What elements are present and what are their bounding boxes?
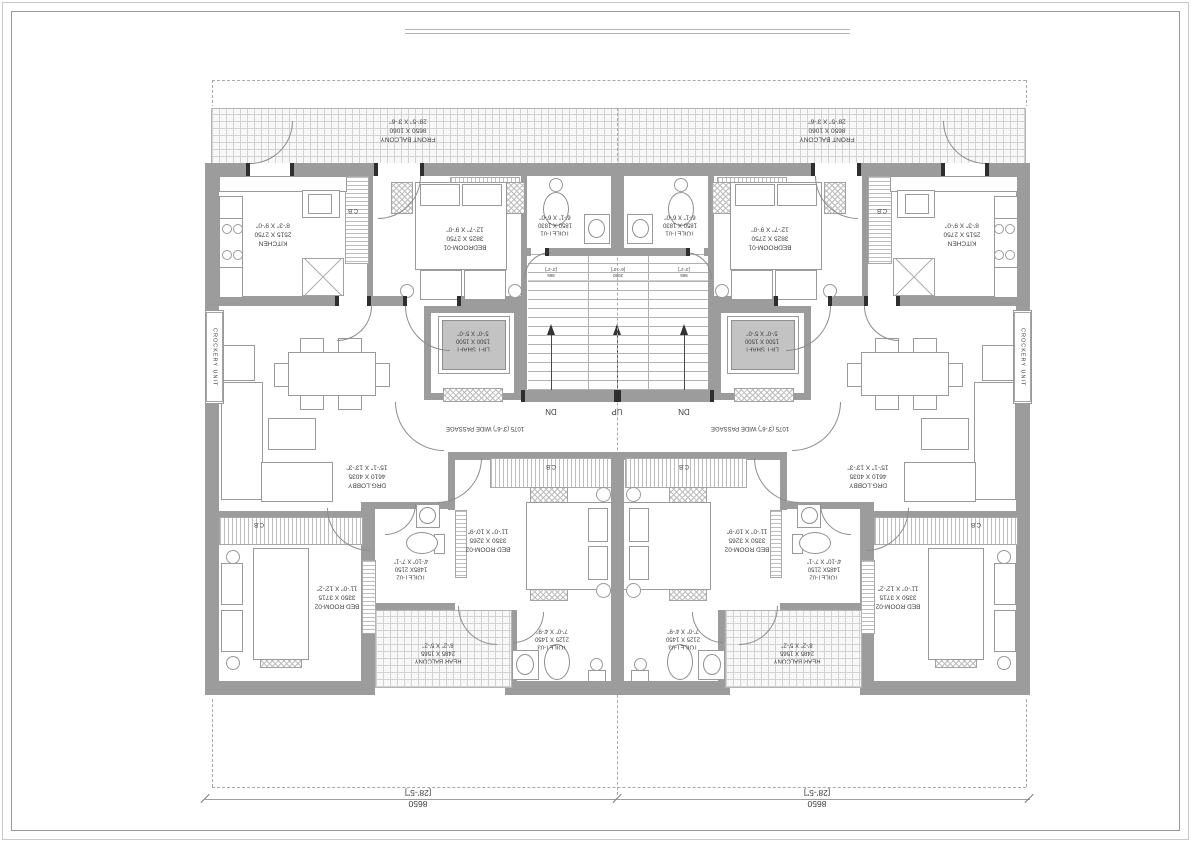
room-label-ft: 7'-0" X 4'-9" <box>520 626 584 634</box>
room-label-mm: 8650 X 1060 <box>352 125 464 134</box>
room-label-ft: 5'-0" X 5'-0" <box>443 328 503 336</box>
room-label-rear_balcony: REAR BALCONY2485 X 15658'-2" X 5'-2" <box>398 640 478 664</box>
door-jamb <box>367 296 371 306</box>
room-label-ft: 8'-3" X 9'-0" <box>238 220 308 229</box>
furniture <box>268 418 316 450</box>
wall <box>521 390 618 402</box>
room-label-name: TOILET-03 <box>651 642 715 650</box>
fixture-circle <box>226 550 240 564</box>
fixture-circle <box>222 224 232 234</box>
room-label-name: TOILET-02 <box>794 572 854 580</box>
room-label-ft: 4'-10" X 7'-1" <box>794 556 854 564</box>
room-label-name: DRG.LOBBY <box>831 480 905 489</box>
room-label-mm: 3350 X 3715 <box>861 592 935 601</box>
room-label-mm: 1500 X 1500 <box>443 336 503 344</box>
door-jamb <box>290 163 294 176</box>
room-label-kitchen: KITCHEN2515 X 27508'-3" X 9'-0" <box>927 220 997 246</box>
fixture-circle <box>674 178 688 192</box>
furniture <box>731 270 773 300</box>
stair-arrow <box>551 335 552 391</box>
stair-landing-dim-mm: 2080 <box>604 272 632 278</box>
wall <box>1016 163 1030 695</box>
sanitary-fixture <box>801 507 818 524</box>
room-label-front_balcony: FRONT BALCONY8650 X 106028'-5" X 3'-6" <box>771 116 883 142</box>
unit-width-dimension-right: 8650 [28'-5"] <box>790 786 844 809</box>
furniture <box>588 670 606 682</box>
furniture <box>221 563 243 605</box>
fixture-circle <box>222 250 232 260</box>
hatch-area <box>345 176 369 264</box>
room-label-name: DRG.LOBBY <box>330 480 404 489</box>
stair-arrow <box>684 335 685 391</box>
room-label-ft: 28'-5" X 3'-6" <box>352 116 464 125</box>
room-label-mm: 3825 X 2750 <box>428 233 502 242</box>
room-label-mm: 2515 X 2750 <box>927 229 997 238</box>
room-label-name: BED ROOM-02 <box>709 544 785 553</box>
wall <box>860 681 1030 695</box>
door-jamb <box>941 163 945 176</box>
room-label-toilet_02: TOILET-021485X 21504'-10" X 7'-1" <box>381 556 441 580</box>
room-label-ft: 8'-2" X 5'-2" <box>757 640 837 648</box>
room-label-mm: 2125 X 1450 <box>651 634 715 642</box>
room-label-bed_room_02_b: BED ROOM-023350 X 326511'-0" X 10'-9" <box>450 526 526 552</box>
room-label-mm: 1850 X 1830 <box>652 220 708 228</box>
room-label-ft: 15'-1" X 13'-3" <box>330 462 404 471</box>
crockery-unit-label: CROCKERY UNIT <box>206 312 223 402</box>
room-label-toilet_01: TOILET-011850 X 18306'-1" X 6'-0" <box>527 212 583 236</box>
room-label-name: REAR BALCONY <box>757 656 837 664</box>
stair-dn-label: DN <box>673 405 695 416</box>
room-label-name: TOILET-03 <box>520 642 584 650</box>
room-label-name: TOILET-01 <box>527 228 583 236</box>
door-opening <box>250 163 290 176</box>
room-label-ft: 15'-1" X 13'-3" <box>831 462 905 471</box>
room-label-mm: 3350 X 3715 <box>300 592 374 601</box>
room-label-name: KITCHEN <box>927 238 997 247</box>
stair-landing-dim: 2080 [6'-10"] <box>604 266 632 278</box>
passage-text: 1075 (3'-6") WIDE PASSAGE <box>702 424 798 432</box>
cupboard-label: C.B <box>671 462 697 470</box>
room-label-mm: 1485X 2150 <box>381 564 441 572</box>
stair-arrow-head <box>680 324 688 335</box>
floor-plan-sheet: 965 [3'-2"] 2080 [6'-10"] 965 [3'-2"] DN… <box>0 0 1191 842</box>
wall <box>505 681 618 695</box>
hatch-area <box>443 388 503 402</box>
furniture <box>875 395 899 410</box>
dim-ft: [28'-5"] <box>790 786 844 797</box>
furniture <box>420 270 462 300</box>
room-label-drg_lobby: DRG.LOBBY4610 X 403515'-1" X 13'-3" <box>330 462 404 488</box>
room-label-mm: 2515 X 2750 <box>238 229 308 238</box>
fixture-circle <box>994 250 1004 260</box>
room-label-mm: 1485X 2150 <box>794 564 854 572</box>
room-label-mm: 3350 X 3265 <box>709 535 785 544</box>
furniture <box>588 508 608 542</box>
room-label-name: BEDROOM-01 <box>733 242 807 251</box>
room-label-mm: 1500 X 1500 <box>732 336 792 344</box>
room-label-mm: 8650 X 1060 <box>771 125 883 134</box>
cupboard-label: C.B <box>340 206 366 214</box>
wall <box>205 681 375 695</box>
room-label-name: FRONT BALCONY <box>352 134 464 143</box>
dim-ft: [28'-5"] <box>391 786 445 797</box>
furniture <box>221 382 263 500</box>
room-label-bed_room_02_a: BED ROOM-023350 X 371511'-0" X 12'-2" <box>861 583 935 609</box>
crockery-unit-label: CROCKERY UNIT <box>1014 312 1031 402</box>
furniture <box>338 395 362 410</box>
furniture <box>982 345 1016 381</box>
room-label-name: TOILET-01 <box>652 228 708 236</box>
room-label-ft: 6'-1" X 6'-0" <box>527 212 583 220</box>
furniture <box>904 462 976 502</box>
dim-mm: 8650 <box>790 797 844 808</box>
room-label-name: LIFT SHAFT <box>443 344 503 352</box>
cb-text: C.B <box>963 520 989 528</box>
furniture <box>861 352 949 396</box>
room-label-bed_room_02_a: BED ROOM-023350 X 371511'-0" X 12'-2" <box>300 583 374 609</box>
wall <box>549 248 618 256</box>
room-label-ft: 8'-3" X 9'-0" <box>927 220 997 229</box>
door-jamb <box>811 163 815 176</box>
door-jamb <box>420 163 424 176</box>
furniture <box>629 508 649 542</box>
unit-width-dimension-left: 8650 [28'-5"] <box>391 786 445 809</box>
fixture-circle <box>997 656 1011 670</box>
fixture-circle <box>596 487 611 502</box>
door-jamb <box>864 296 868 306</box>
furniture <box>921 418 969 450</box>
wall <box>780 603 867 610</box>
stair-flight-divider <box>648 254 649 392</box>
room-label-mm: 2485 X 1565 <box>757 648 837 656</box>
fixture-circle <box>997 550 1011 564</box>
dim-mm: 8650 <box>391 797 445 808</box>
stair-dim-line <box>528 280 708 281</box>
wall <box>617 248 686 256</box>
furniture <box>913 338 937 353</box>
door-jamb <box>457 296 461 306</box>
wall <box>611 163 624 254</box>
furniture <box>994 563 1016 605</box>
room-label-bedroom_01: BEDROOM-013825 X 275012'-7" X 9'-0" <box>733 224 807 250</box>
stair-dn-label: DN <box>540 405 562 416</box>
room-label-drg_lobby: DRG.LOBBY4610 X 403515'-1" X 13'-3" <box>831 462 905 488</box>
refrigerator-space <box>302 258 344 296</box>
sanitary-fixture <box>588 219 605 238</box>
door-jamb <box>617 390 621 402</box>
furniture <box>261 462 333 502</box>
stair-landing-dim-ft: [6'-10"] <box>604 266 632 272</box>
room-label-toilet_03: TOILET-032125 X 14507'-0" X 4'-9" <box>651 626 715 650</box>
room-label-ft: 11'-0" X 12'-2" <box>300 583 374 592</box>
stair-flight-divider <box>588 254 589 392</box>
sanitary-fixture <box>516 654 534 675</box>
room-label-ft: 12'-7" X 9'-0" <box>733 224 807 233</box>
fixture-circle <box>634 658 647 671</box>
wall <box>832 296 864 306</box>
cupboard-label: C.B <box>869 206 895 214</box>
door-jamb <box>857 163 861 176</box>
room-label-mm: 1850 X 1830 <box>527 220 583 228</box>
door-jamb <box>403 296 407 306</box>
door-opening <box>378 163 420 176</box>
door-jamb <box>246 163 250 176</box>
sanitary-fixture <box>419 507 436 524</box>
wall <box>205 163 219 695</box>
sanitary-fixture <box>632 219 649 238</box>
furniture <box>462 184 502 206</box>
room-label-name: LIFT SHAFT <box>732 344 792 352</box>
furniture <box>375 363 390 387</box>
door-jamb <box>828 296 832 306</box>
furniture <box>274 363 289 387</box>
furniture <box>631 670 649 682</box>
room-label-ft: 7'-0" X 4'-9" <box>651 626 715 634</box>
dn-text: DN <box>673 405 695 416</box>
fixture-circle <box>626 583 641 598</box>
furniture <box>464 270 506 300</box>
room-label-name: FRONT BALCONY <box>771 134 883 143</box>
wall <box>617 390 714 402</box>
room-label-mm: 3350 X 3265 <box>450 535 526 544</box>
furniture <box>994 610 1016 652</box>
wall <box>514 306 521 400</box>
room-label-ft: 4'-10" X 7'-1" <box>381 556 441 564</box>
room-label-name: BED ROOM-02 <box>450 544 526 553</box>
door-opening <box>815 163 857 176</box>
fixture-circle <box>1005 224 1015 234</box>
room-label-name: BEDROOM-01 <box>428 242 502 251</box>
room-label-name: TOILET-02 <box>381 572 441 580</box>
room-label-name: KITCHEN <box>238 238 308 247</box>
furniture <box>928 548 984 660</box>
passage-text: 1075 (3'-6") WIDE PASSAGE <box>437 424 533 432</box>
hatch-area <box>868 176 892 264</box>
fixture-circle <box>233 250 243 260</box>
wall <box>368 603 455 610</box>
room-label-mm: 4610 X 4035 <box>831 471 905 480</box>
fixture-circle <box>549 178 563 192</box>
furniture <box>221 345 255 381</box>
cupboard-label: C.B <box>246 520 272 528</box>
fixture-circle <box>626 487 641 502</box>
fixture-circle <box>1005 250 1015 260</box>
bottom-dimension-line <box>205 799 1030 800</box>
room-label-name: BED ROOM-02 <box>861 601 935 610</box>
door-jamb <box>686 248 690 256</box>
room-label-lift_shaft: LIFT SHAFT1500 X 15005'-0" X 5'-0" <box>732 328 792 352</box>
fixture-circle <box>508 284 522 298</box>
fixture-circle <box>226 656 240 670</box>
furniture <box>974 382 1016 500</box>
room-label-mm: 3825 X 2750 <box>733 233 807 242</box>
room-label-ft: 11'-0" X 10'-9" <box>450 526 526 535</box>
fixture-circle <box>590 658 603 671</box>
cb-text: C.B <box>671 462 697 470</box>
hatch-area <box>734 388 794 402</box>
wall <box>371 296 403 306</box>
door-jamb <box>335 296 339 306</box>
room-label-front_balcony: FRONT BALCONY8650 X 106028'-5" X 3'-6" <box>352 116 464 142</box>
room-label-ft: 5'-0" X 5'-0" <box>732 328 792 336</box>
room-label-name: REAR BALCONY <box>398 656 478 664</box>
room-label-ft: 28'-5" X 3'-6" <box>771 116 883 125</box>
door-jamb <box>545 248 549 256</box>
sanitary-fixture <box>703 654 721 675</box>
fixture-circle <box>596 583 611 598</box>
wall <box>617 681 730 695</box>
party-centre-line-lower <box>617 695 618 795</box>
room-label-bedroom_01: BEDROOM-013825 X 275012'-7" X 9'-0" <box>428 224 502 250</box>
furniture <box>588 546 608 580</box>
room-label-mm: 2125 X 1450 <box>520 634 584 642</box>
door-jamb <box>774 296 778 306</box>
door-jamb <box>985 163 989 176</box>
cb-text: C.B <box>340 206 366 214</box>
wall <box>714 306 721 400</box>
room-label-kitchen: KITCHEN2515 X 27508'-3" X 9'-0" <box>238 220 308 246</box>
furniture <box>308 194 332 214</box>
refrigerator-space <box>893 258 935 296</box>
furniture <box>288 352 376 396</box>
furniture <box>300 338 324 353</box>
room-label-toilet_03: TOILET-032125 X 14507'-0" X 4'-9" <box>520 626 584 650</box>
furniture <box>948 363 963 387</box>
room-label-toilet_02: TOILET-021485X 21504'-10" X 7'-1" <box>794 556 854 580</box>
furniture <box>300 395 324 410</box>
room-label-bed_room_02_b: BED ROOM-023350 X 326511'-0" X 10'-9" <box>709 526 785 552</box>
cupboard-label: C.B <box>538 462 564 470</box>
room-label-ft: 6'-1" X 6'-0" <box>652 212 708 220</box>
furniture <box>775 270 817 300</box>
furniture <box>221 610 243 652</box>
room-label-ft: 11'-0" X 10'-9" <box>709 526 785 535</box>
furniture <box>913 395 937 410</box>
door-jamb <box>710 390 714 402</box>
room-label-ft: 12'-7" X 9'-0" <box>428 224 502 233</box>
cb-text: C.B <box>869 206 895 214</box>
cb-text: C.B <box>246 520 272 528</box>
plan-area: 965 [3'-2"] 2080 [6'-10"] 965 [3'-2"] DN… <box>0 0 1191 842</box>
room-label-lift_shaft: LIFT SHAFT1500 X 15005'-0" X 5'-0" <box>443 328 503 352</box>
dn-text: DN <box>540 405 562 416</box>
furniture <box>847 363 862 387</box>
room-label-toilet_01: TOILET-011850 X 18306'-1" X 6'-0" <box>652 212 708 236</box>
sanitary-fixture <box>799 532 831 554</box>
furniture <box>777 184 817 206</box>
room-label-ft: 8'-2" X 5'-2" <box>398 640 478 648</box>
room-label-mm: 4610 X 4035 <box>330 471 404 480</box>
room-label-rear_balcony: REAR BALCONY2485 X 15658'-2" X 5'-2" <box>757 640 837 664</box>
room-label-mm: 2485 X 1565 <box>398 648 478 656</box>
sanitary-fixture <box>406 532 438 554</box>
room-label-name: BED ROOM-02 <box>300 601 374 610</box>
cupboard-label: C.B <box>963 520 989 528</box>
furniture <box>420 184 460 206</box>
door-jamb <box>521 390 525 402</box>
cb-text: C.B <box>538 462 564 470</box>
furniture <box>629 546 649 580</box>
passage-label-right: 1075 (3'-6") WIDE PASSAGE <box>702 424 798 432</box>
door-jamb <box>896 296 900 306</box>
fixture-circle <box>715 284 729 298</box>
door-jamb <box>374 163 378 176</box>
room-label-ft: 11'-0" X 12'-2" <box>861 583 935 592</box>
passage-label-left: 1075 (3'-6") WIDE PASSAGE <box>437 424 533 432</box>
stair-arrow-head <box>547 324 555 335</box>
door-opening <box>945 163 985 176</box>
furniture <box>905 194 929 214</box>
front-balcony-deck <box>211 108 1026 165</box>
furniture <box>735 184 775 206</box>
